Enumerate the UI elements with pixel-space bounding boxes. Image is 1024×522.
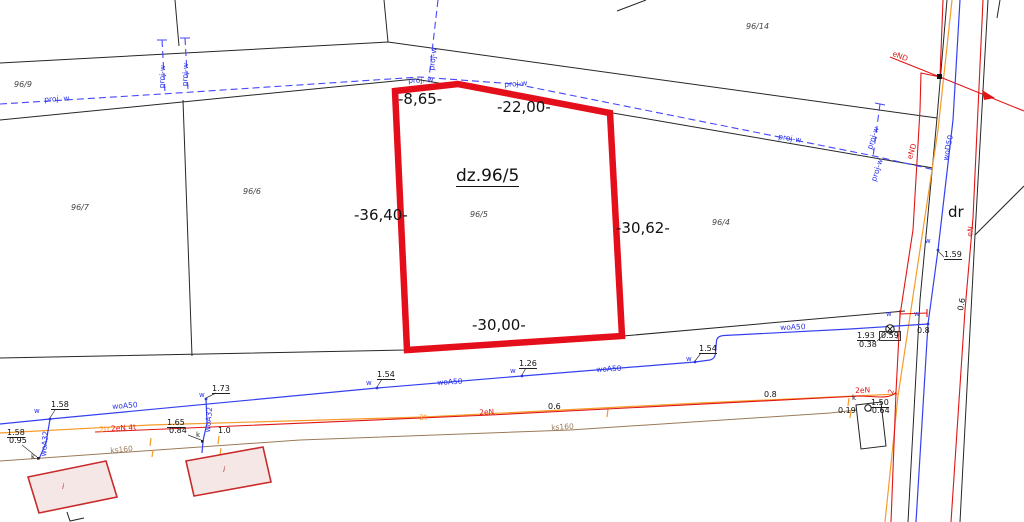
boundary-stub-96-14 [617,0,646,11]
leader [50,410,55,418]
w-marker: w [914,311,920,318]
w-point [927,323,930,326]
proj-w-label: proj-w [504,79,528,88]
w-marker: w [886,311,892,318]
depth-label: 0.59 [879,331,901,341]
parcel-number-96-4: 96/4 [712,219,730,227]
depth-label: 1.59 [944,251,962,260]
parcel-number-96-6: 96/6 [243,188,261,196]
woA32-label: woA32 [204,407,214,433]
boundary-96-7-96-6 [183,100,192,356]
depth-label: 1.54 [377,371,395,380]
water-line-group [0,0,960,522]
w-marker: w [510,368,516,375]
w-marker: w [925,238,931,245]
2eN-label: 2eN [479,408,494,416]
proj-w-main [0,77,935,170]
depth-label: 1.54 [699,345,717,354]
depth-label: 1.26 [519,360,537,369]
proj-w-label: proj. w [408,76,434,84]
leader [695,353,701,361]
2tr-label: 2tr [99,424,110,434]
ks160-label: ks160 [551,423,574,432]
woA32-label: woA32 [40,431,50,457]
depth-label: 0.84 [169,427,187,435]
w-point [376,387,379,390]
power-r1-line [891,73,940,522]
depth-label: 1.58 [51,401,69,410]
boundary-strip-bottom [0,79,933,168]
depth-label: 0.6 [548,403,561,411]
leader [377,379,382,387]
building-1 [28,461,117,513]
symbols-group [22,74,944,460]
woA50-label: woA50 [780,323,806,331]
depth-label: -0.64 [869,407,890,415]
ks160-label: ks160 [110,445,133,454]
woA50-label: woA50 [112,401,138,410]
buildings-group [28,402,886,521]
dimension-label-bottom: -30,00- [472,318,526,333]
w-point [205,398,208,401]
leader-lines [22,251,944,457]
depth-label: 0.38 [859,341,877,349]
eN-label: eN [966,226,975,237]
w-point [49,418,52,421]
w-point [694,361,697,364]
parcel-number-96-5: 96/5 [470,211,488,219]
junction-square [937,74,942,79]
w-point [521,375,524,378]
dimension-label-left: -36,40- [354,208,408,223]
cadastral-map: -8,65- -22,00- -36,40- -30,62- -30,00- d… [0,0,1024,522]
depth-label: 0.19 [838,407,856,415]
depth-label: 1.73 [212,385,230,394]
k-marker: k [196,432,200,439]
boundary-vertical-96-9 [175,0,179,46]
w-marker: w [34,408,40,415]
building-label: i [223,466,225,474]
map-canvas [0,0,1024,522]
building-1-step [67,512,84,521]
boundary-east-diagonal [975,186,1024,235]
proj-w-label-vertical: proj-w [158,65,167,89]
parcel-number-96-9: 96/9 [14,81,32,89]
road-edge-east [960,0,988,522]
depth-label: 0.8 [917,327,930,335]
parcel-number-96-7: 96/7 [71,204,89,212]
dimension-label-right: -30,62- [616,221,670,236]
k-marker: k [852,395,856,402]
telecom-line-group [0,0,952,522]
parcel-number-96-14: 96/14 [746,23,769,31]
depth-label: 1.0 [218,427,231,435]
parcel-96-5-outline [395,84,622,350]
boundary-stub-ne [997,0,1000,18]
2t-label: 2t [419,414,427,422]
dimension-label-top-right: -22,00- [497,100,551,115]
dimension-label-top-left: -8,65- [398,92,442,107]
k-point [201,440,204,443]
w-marker: w [199,392,205,399]
leader [522,368,526,375]
parcel-title: dz.96/5 [456,168,519,187]
boundary-vertical-top [384,0,388,42]
building-2 [186,447,271,496]
boundary-long-south [0,311,905,358]
water-points [49,249,940,421]
building-label: i [62,483,64,491]
k-marker: k [31,454,35,461]
woA50-label: woA50 [437,378,463,387]
2eN-label: 2eN [855,386,870,394]
depth-label: 0.8 [764,391,777,399]
w-marker: w [686,356,692,363]
w-marker: w [366,380,372,387]
woA50-label: woA50 [596,365,622,374]
road-label: dr [948,205,964,220]
proj-w-label: proj. w [44,94,70,103]
k-point [37,457,40,460]
water-woA50-line [0,324,928,424]
power-diagonal-eND [890,57,1024,111]
2eN-4t-label: 2eN 4t [111,422,137,433]
w-point [937,249,940,252]
proj-w-label-vertical: proj-w [181,63,190,87]
depth-label: 0.95 [9,437,27,445]
